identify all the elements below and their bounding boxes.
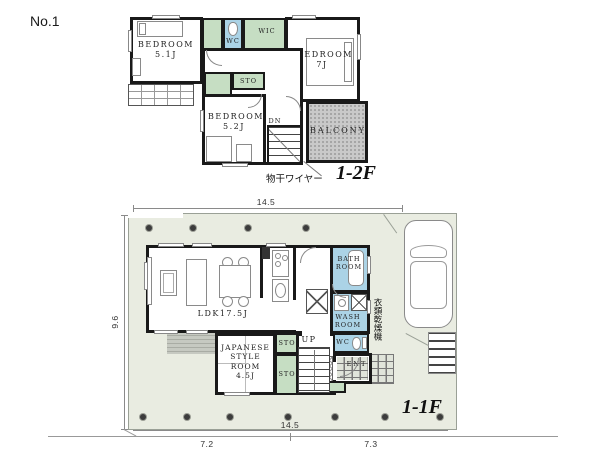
dim-bottom-right: 7.3	[356, 439, 386, 449]
window-mark	[152, 15, 180, 19]
car-roof	[410, 261, 447, 309]
stairs-2f	[267, 125, 302, 164]
window-mark	[192, 243, 212, 247]
window-mark	[128, 30, 132, 52]
shrub-dot	[332, 414, 338, 420]
room-label-wc-1f: WC	[335, 338, 351, 346]
dim-line-outer	[48, 436, 558, 437]
shrub-dot	[227, 414, 233, 420]
dim-line-top	[133, 208, 402, 209]
toilet-icon-2f	[228, 22, 238, 36]
window-mark	[292, 15, 316, 19]
room-label-japanese: JAPANESE STYLE ROOM 4.5J	[218, 343, 273, 381]
approach-steps	[428, 332, 456, 374]
shrub-dot	[382, 414, 388, 420]
window-mark	[367, 300, 371, 314]
stairs-dn-label: DN	[266, 117, 284, 125]
stairs-1f	[298, 347, 330, 393]
laundry-wire-note: 物干ワイヤー	[266, 171, 323, 185]
stair-diagonal	[268, 129, 302, 164]
toilet-tank	[362, 337, 367, 349]
room-label-wic: WIC	[252, 27, 282, 35]
linen-closet	[306, 289, 328, 314]
stove-icon	[272, 250, 289, 277]
stairs-up-label: UP	[299, 335, 319, 345]
room-label-ldk: LDK17.5J	[192, 309, 254, 319]
plan-number: No.1	[30, 13, 60, 29]
room-label-sto-2f: STO	[232, 77, 265, 85]
window-mark	[357, 34, 361, 60]
window-mark	[224, 392, 250, 396]
floorplan-canvas: No.1 BEDROOM 5.1J WC WIC BEDROOM 7J STO …	[0, 0, 600, 450]
lot-edge-notch	[127, 211, 183, 218]
pillow-icon	[139, 23, 146, 35]
closet-2f-west	[204, 72, 232, 96]
dim-tick	[402, 205, 403, 212]
sofa-icon	[186, 259, 207, 306]
kitchen-cabinet	[262, 247, 270, 259]
floor-1f-label: 1-1F	[402, 396, 442, 419]
shrub-dot	[303, 225, 309, 231]
window-mark	[367, 256, 371, 274]
shrub-dot	[245, 225, 251, 231]
room-label-wc-2f: WC	[223, 37, 243, 45]
floor-2f-label: 1-2F	[336, 162, 376, 185]
room-label-bedroom-52: BEDROOM 5.2J	[208, 112, 260, 133]
window-mark	[200, 110, 204, 132]
dim-tick	[290, 433, 291, 441]
dim-bottom: 14.5	[272, 420, 308, 430]
room-label-bedroom-51: BEDROOM 5.1J	[134, 40, 198, 61]
car-windshield	[410, 245, 447, 258]
desk-icon	[236, 144, 252, 162]
room-label-wash: WASH ROOM	[331, 313, 365, 329]
toilet-icon-1f	[352, 337, 361, 350]
dim-bottom-left: 7.2	[192, 439, 222, 449]
room-label-sto-lower: STO	[275, 370, 299, 378]
low-table-icon	[160, 270, 177, 296]
shrub-dot	[146, 225, 152, 231]
shrub-dot	[190, 225, 196, 231]
dryer-note: 衣類乾燥機	[372, 298, 384, 356]
window-mark	[158, 243, 184, 247]
closet-2f	[202, 18, 223, 50]
dim-line-bottom	[133, 430, 448, 431]
sink-icon	[272, 279, 289, 302]
window-mark	[266, 243, 286, 247]
chair-icon	[238, 296, 249, 307]
washer-icon	[351, 294, 367, 311]
shrub-dot	[140, 414, 146, 420]
window-mark	[186, 330, 208, 334]
dim-left: 9.6	[110, 309, 120, 335]
dining-table-icon	[219, 265, 251, 298]
dim-line-left	[124, 215, 125, 430]
bed-icon	[206, 136, 232, 162]
window-mark	[154, 330, 178, 334]
opening	[291, 300, 299, 330]
shrub-dot	[184, 414, 190, 420]
dim-tick	[133, 205, 134, 212]
opening	[258, 298, 266, 330]
room-label-balcony: BALCONY	[310, 126, 364, 136]
car-icon	[404, 220, 453, 328]
room-label-bath: BATH ROOM	[332, 255, 366, 271]
chair-icon	[222, 296, 233, 307]
window-mark	[144, 262, 148, 290]
dim-tick	[121, 215, 128, 216]
room-label-sto-upper: STO	[275, 339, 299, 347]
terrace	[167, 332, 215, 354]
roof-brick-area	[128, 84, 194, 106]
dim-top: 14.5	[248, 197, 284, 207]
entrance-porch-tiles	[370, 354, 394, 384]
room-label-bedroom-7: BEDROOM 7J	[297, 50, 347, 71]
window-mark	[222, 163, 248, 167]
